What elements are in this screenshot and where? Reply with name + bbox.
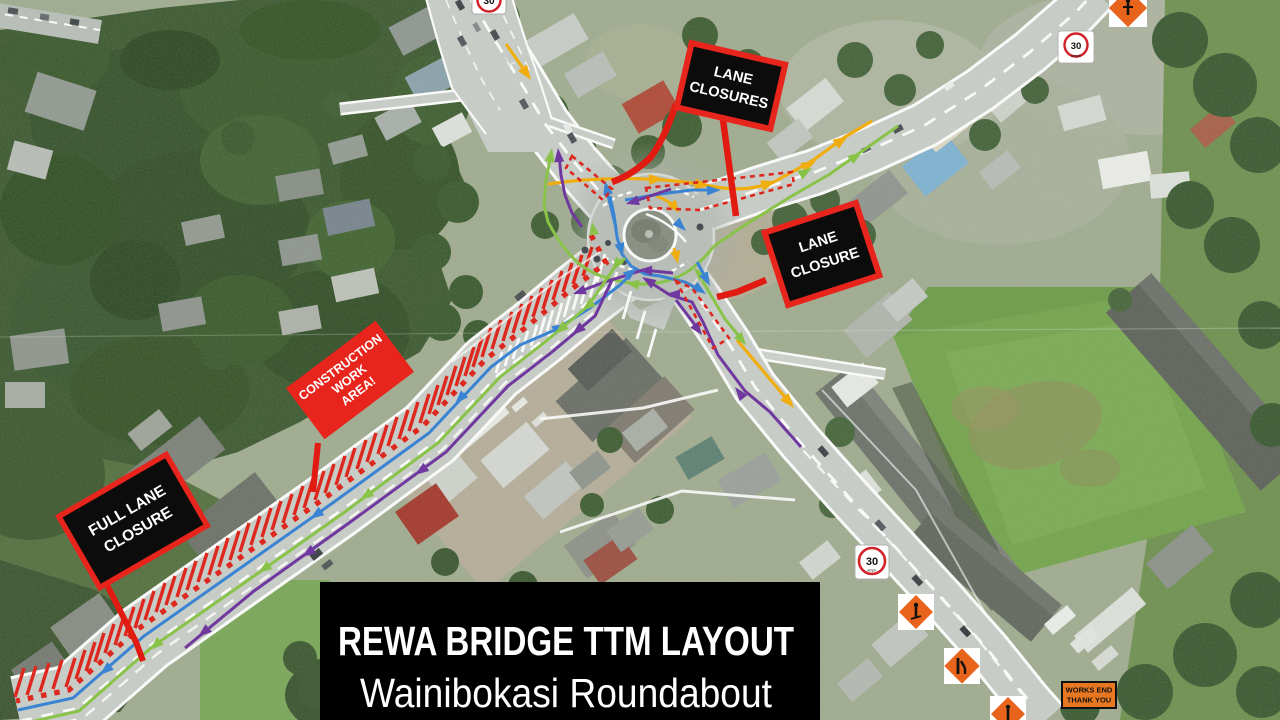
svg-text:kmph: kmph: [868, 569, 877, 573]
svg-text:WORKS END: WORKS END: [1066, 686, 1113, 695]
svg-text:REWA BRIDGE TTM LAYOUT: REWA BRIDGE TTM LAYOUT: [338, 618, 794, 664]
svg-text:THANK YOU: THANK YOU: [1067, 696, 1111, 705]
svg-text:30: 30: [483, 0, 495, 7]
svg-text:30: 30: [1071, 41, 1082, 52]
svg-text:30: 30: [866, 556, 878, 568]
svg-text:kmph: kmph: [1071, 53, 1081, 58]
svg-text:Wainibokasi Roundabout: Wainibokasi Roundabout: [360, 670, 773, 716]
